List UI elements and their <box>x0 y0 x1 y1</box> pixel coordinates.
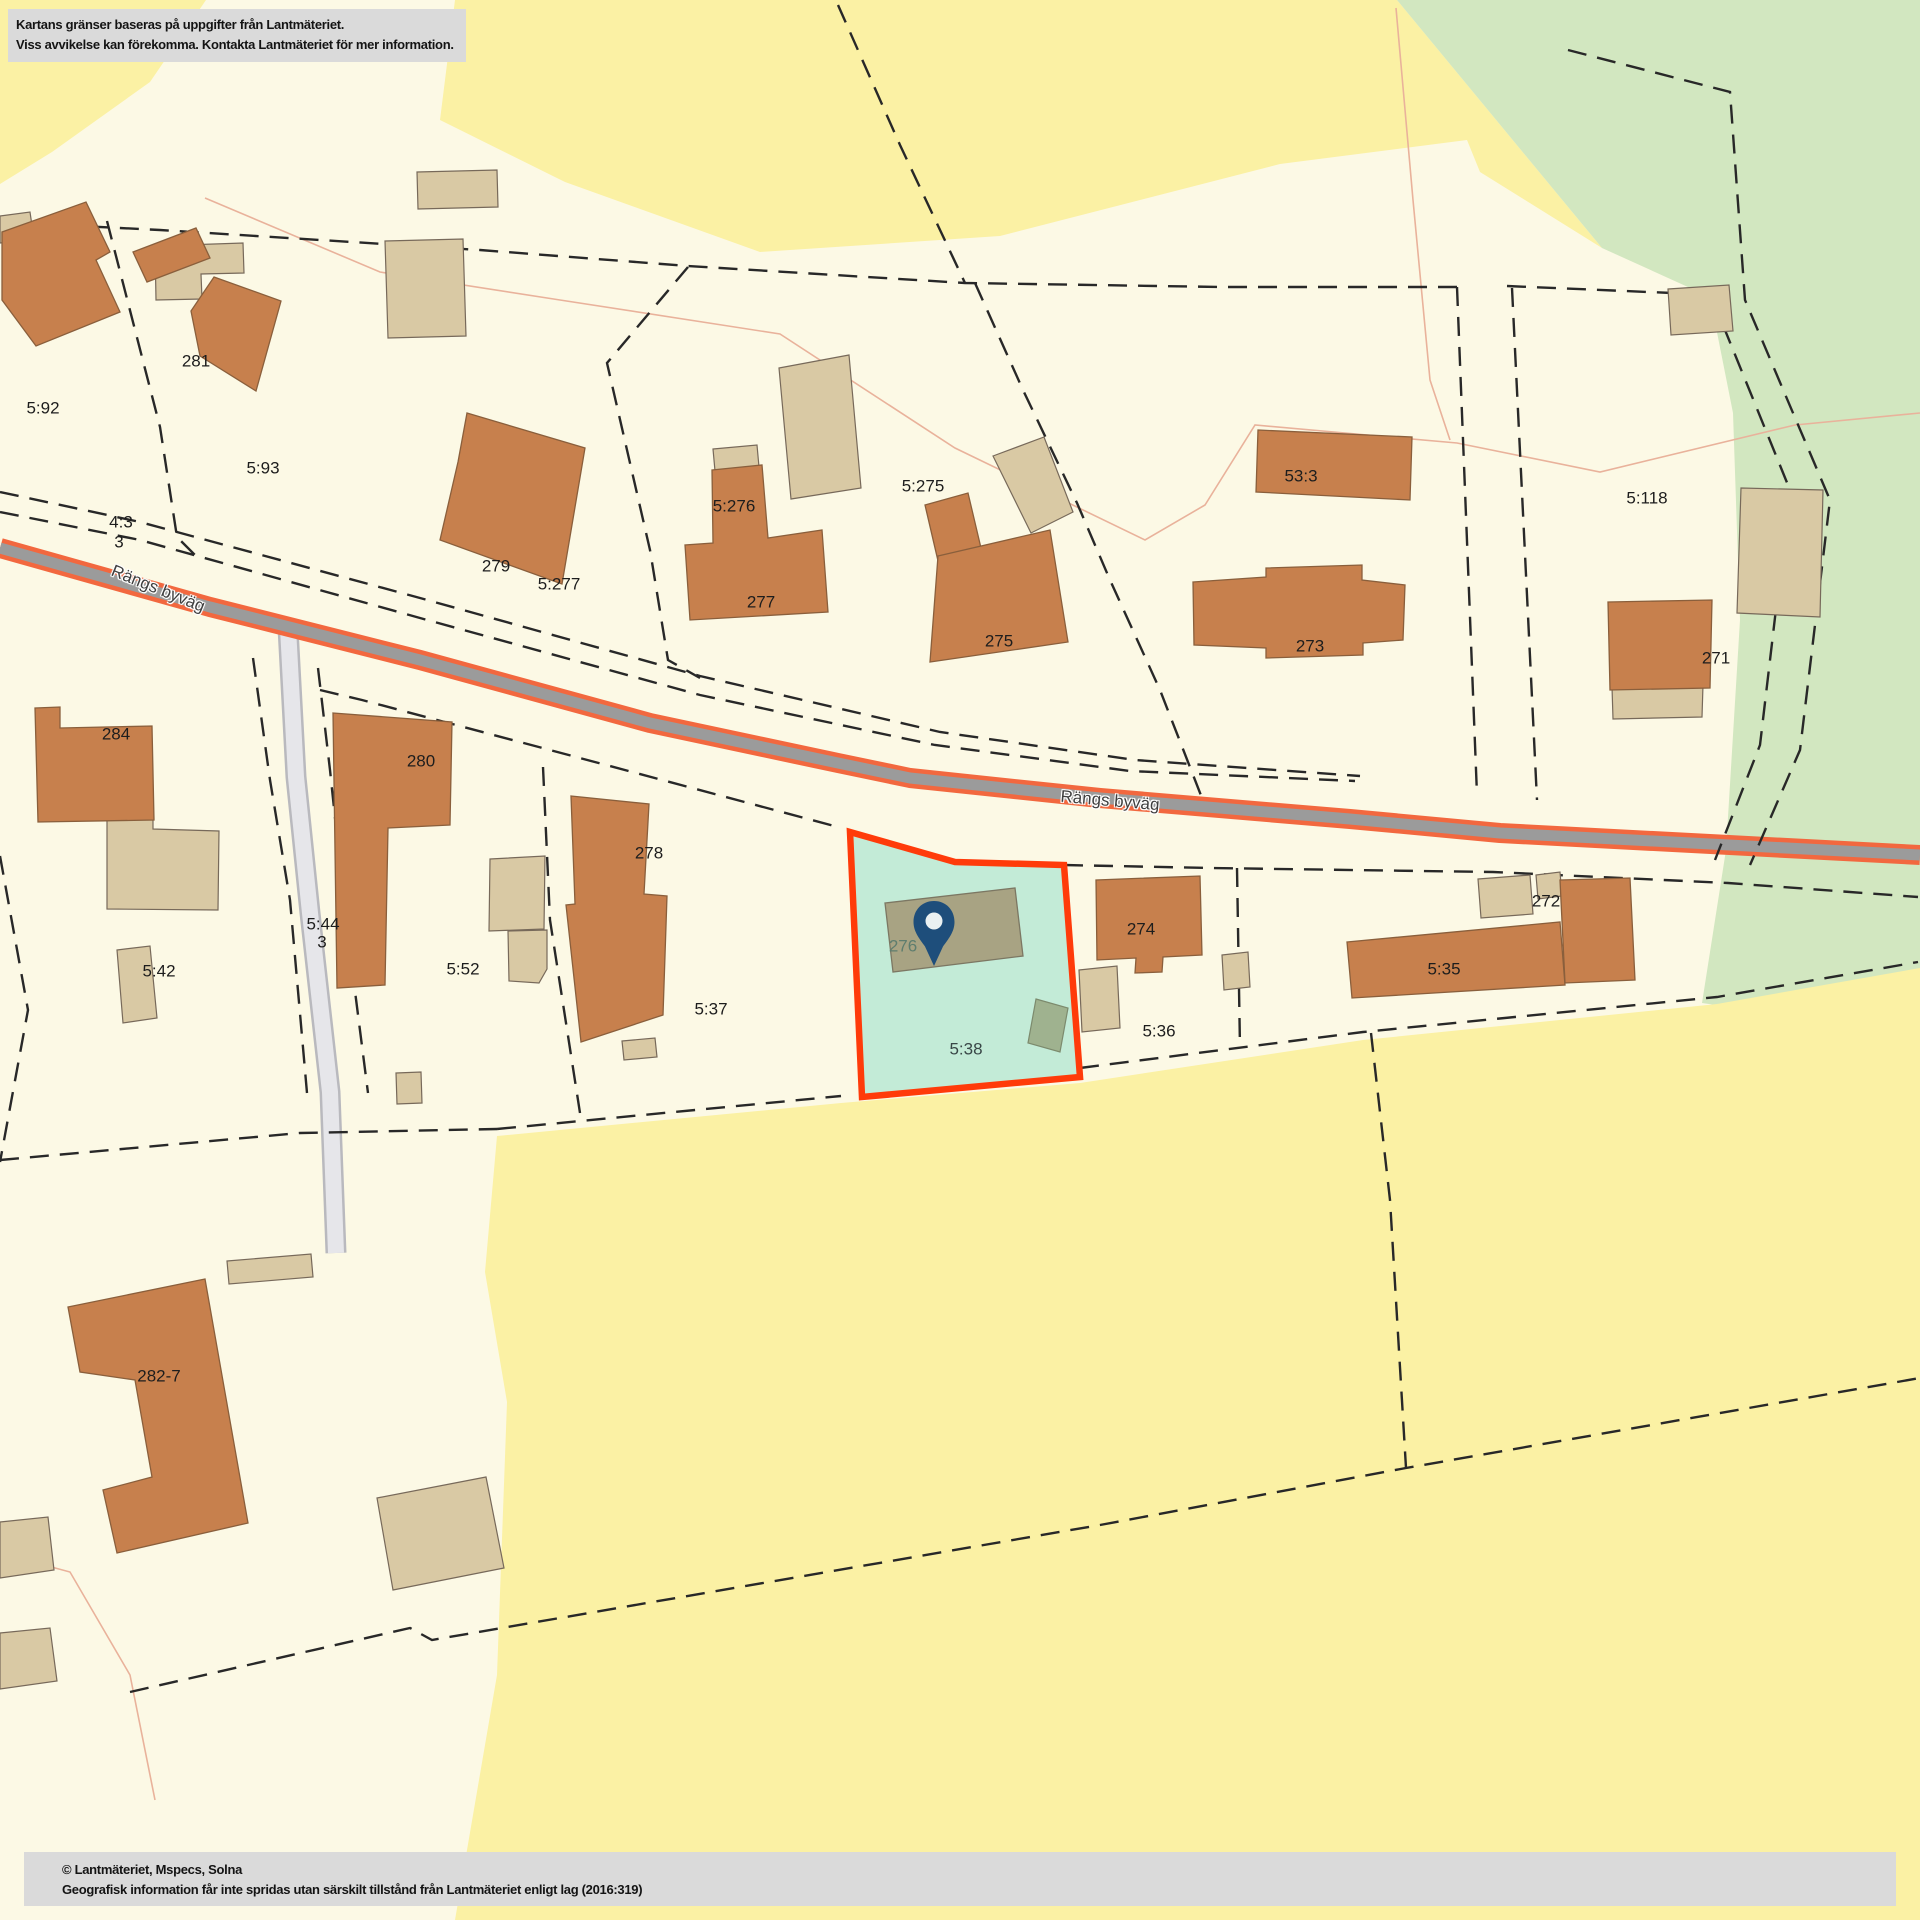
parcel-label-275: 275 <box>985 633 1013 650</box>
outbuilding <box>417 170 498 209</box>
parcel-label-3b: 3 <box>317 934 326 951</box>
outbuilding <box>622 1038 657 1060</box>
outbuilding <box>489 856 545 931</box>
parcel-label-281: 281 <box>182 353 210 370</box>
map-canvas[interactable]: 5:92 281 5:93 4:3 3 279 5:277 5:276 277 … <box>0 0 1920 1920</box>
parcel-label-5-36: 5:36 <box>1142 1023 1175 1040</box>
highlight-parcel-label: 5:38 <box>949 1041 982 1058</box>
parcel-label-5-52: 5:52 <box>446 961 479 978</box>
parcel-label-282-7: 282-7 <box>137 1368 180 1385</box>
house-271 <box>1608 600 1712 690</box>
parcel-label-284: 284 <box>102 726 130 743</box>
outbuilding <box>1222 952 1250 990</box>
outbuilding <box>0 1628 57 1689</box>
outbuilding <box>508 930 547 983</box>
outbuilding <box>385 239 466 338</box>
outbuilding <box>1478 875 1533 918</box>
parcel-label-5-277: 5:277 <box>538 576 581 593</box>
parcel-label-53-3: 53:3 <box>1284 468 1317 485</box>
map-disclaimer: Kartans gränser baseras på uppgifter frå… <box>8 9 466 62</box>
attribution-line1: © Lantmäteriet, Mspecs, Solna <box>62 1860 1896 1880</box>
parcel-label-5-44: 5:44 <box>306 916 339 933</box>
parcel-label-278: 278 <box>635 845 663 862</box>
outbuilding <box>1079 966 1120 1032</box>
parcel-label-272: 272 <box>1532 893 1560 910</box>
parcel-label-5-276: 5:276 <box>713 498 756 515</box>
parcel-label-279: 279 <box>482 558 510 575</box>
parcel-label-5-37: 5:37 <box>694 1001 727 1018</box>
house-53-3 <box>1256 430 1412 500</box>
parcel-label-5-92: 5:92 <box>26 400 59 417</box>
parcel-label-277: 277 <box>747 594 775 611</box>
outbuilding <box>1668 285 1733 335</box>
outbuilding <box>396 1072 422 1104</box>
parcel-label-274: 274 <box>1127 921 1155 938</box>
shed-276 <box>1028 999 1068 1052</box>
location-pin-icon[interactable] <box>911 900 957 968</box>
disclaimer-line1: Kartans gränser baseras på uppgifter frå… <box>16 15 454 35</box>
parcel-label-280: 280 <box>407 753 435 770</box>
parcel-label-5-35: 5:35 <box>1427 961 1460 978</box>
parcel-label-5-275: 5:275 <box>902 478 945 495</box>
parcel-label-271: 271 <box>1702 650 1730 667</box>
attribution-line2: Geografisk information får inte spridas … <box>62 1880 1896 1900</box>
parcel-label-5-42: 5:42 <box>142 963 175 980</box>
outbuilding <box>117 946 157 1023</box>
outbuilding <box>1737 488 1823 617</box>
parcel-label-3a: 3 <box>114 534 123 551</box>
map-graphics <box>0 0 1920 1920</box>
parcel-label-273: 273 <box>1296 638 1324 655</box>
disclaimer-line2: Viss avvikelse kan förekomma. Kontakta L… <box>16 35 454 55</box>
outbuilding <box>107 817 219 910</box>
map-attribution: © Lantmäteriet, Mspecs, Solna Geografisk… <box>24 1852 1896 1906</box>
house-272 <box>1560 878 1635 983</box>
parcel-label-5-93: 5:93 <box>246 460 279 477</box>
outbuilding <box>779 355 861 499</box>
parcel-label-4-3: 4:3 <box>109 514 133 531</box>
outbuilding <box>0 1517 54 1578</box>
parcel-label-5-118: 5:118 <box>1626 490 1667 507</box>
